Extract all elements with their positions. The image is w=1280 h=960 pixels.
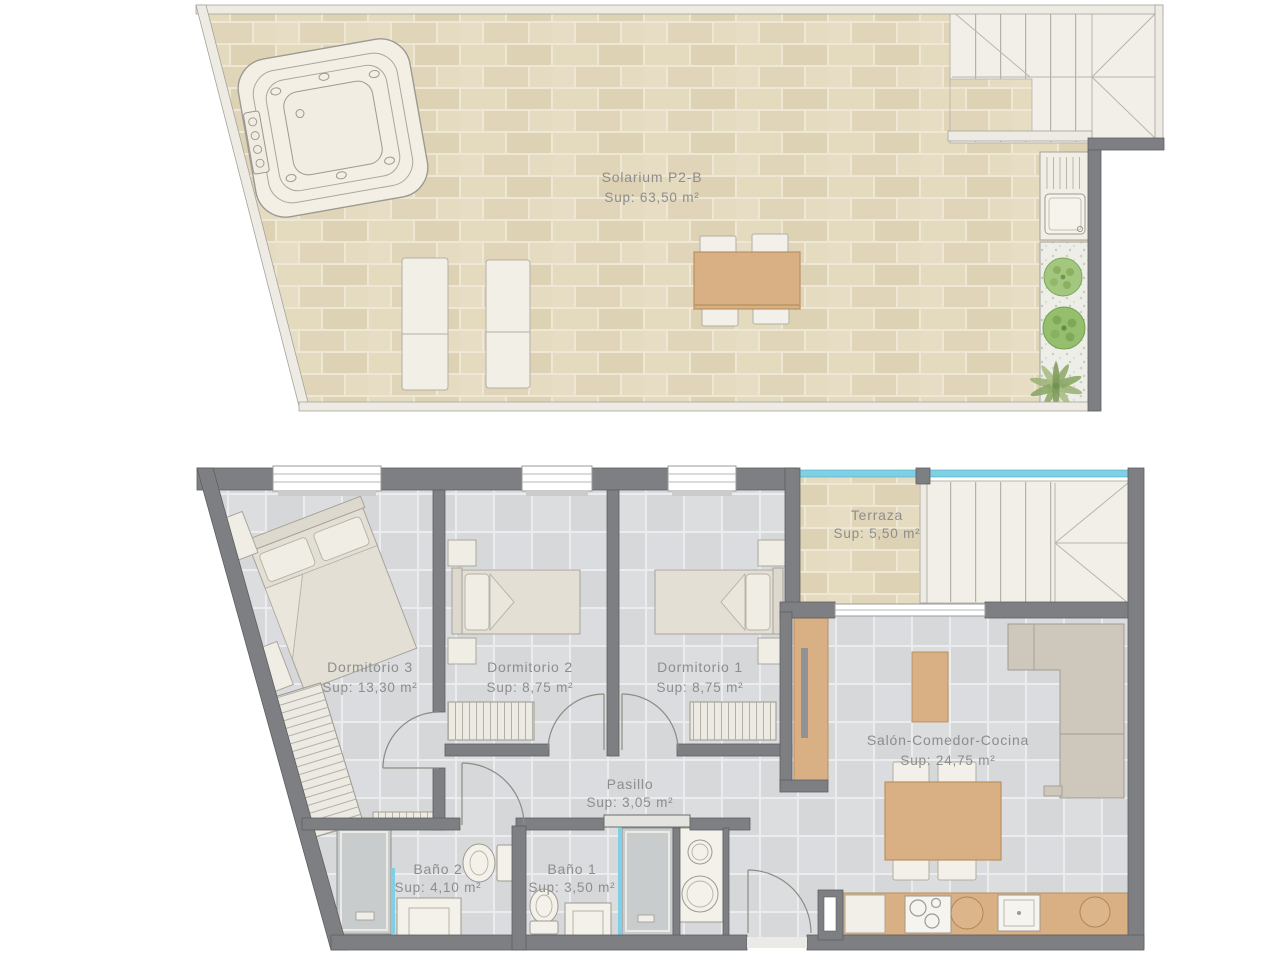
- terraza-area: Sup: 5,50 m²: [834, 526, 921, 541]
- dormitorio1-label: Dormitorio 1: [657, 659, 743, 675]
- coffee-table: [912, 652, 948, 722]
- glass-railing: [800, 470, 1128, 477]
- entrance-threshold: [747, 937, 807, 948]
- dormitorio2-label: Dormitorio 2: [487, 659, 573, 675]
- bano2-area: Sup: 4,10 m²: [395, 880, 482, 895]
- window: [273, 466, 381, 496]
- dormitorio1-area: Sup: 8,75 m²: [657, 680, 744, 695]
- pasillo-area: Sup: 3,05 m²: [587, 795, 674, 810]
- terraza-label: Terraza: [851, 507, 903, 523]
- kitchen-cabinet: [845, 895, 885, 933]
- salon-area: Sup: 24,75 m²: [900, 753, 995, 768]
- sliding-door-bano1: [604, 815, 690, 827]
- shower-glass: [618, 828, 622, 935]
- wardrobe: [690, 702, 776, 740]
- shower-glass: [391, 868, 395, 934]
- dormitorio3-area: Sup: 13,30 m²: [322, 680, 417, 695]
- shower: [337, 828, 395, 934]
- solarium-area: Sup: 63,50 m²: [604, 190, 699, 205]
- counter-basin: [1080, 897, 1110, 927]
- bush-plant: [1043, 307, 1085, 349]
- nightstand: [758, 540, 786, 566]
- single-bed: [655, 568, 783, 634]
- sun-lounger: [486, 260, 530, 388]
- wardrobe: [448, 702, 534, 740]
- window: [835, 604, 985, 616]
- solarium-plan: Solarium P2-B Sup: 63,50 m²: [196, 5, 1164, 411]
- floor-plans-page: Solarium P2-B Sup: 63,50 m²: [0, 0, 1280, 960]
- washer-column: [678, 828, 723, 922]
- nightstand: [448, 638, 476, 664]
- toilet: [463, 844, 513, 882]
- bano1-area: Sup: 3,50 m²: [529, 880, 616, 895]
- bano1-label: Baño 1: [547, 861, 596, 877]
- window: [668, 466, 736, 496]
- apartment-plan: Dormitorio 3 Sup: 13,30 m² Dormitorio 2 …: [197, 466, 1144, 950]
- salon-label: Salón-Comedor-Cocina: [867, 732, 1029, 748]
- single-bed: [452, 568, 580, 634]
- floor-plans: Solarium P2-B Sup: 63,50 m²: [0, 0, 1280, 960]
- nightstand: [448, 540, 476, 566]
- apartment-stairs: [920, 479, 1128, 603]
- bano2-label: Baño 2: [413, 861, 462, 877]
- counter-basin: [951, 897, 983, 929]
- tv-cabinet: [794, 618, 828, 782]
- toilet: [530, 889, 558, 934]
- sun-lounger: [402, 258, 448, 390]
- jacuzzi: [233, 34, 432, 222]
- solarium-label: Solarium P2-B: [602, 169, 703, 185]
- window: [522, 466, 592, 496]
- shower: [618, 828, 673, 935]
- bush-plant: [1044, 258, 1082, 296]
- pasillo-label: Pasillo: [607, 776, 654, 792]
- dormitorio3-label: Dormitorio 3: [327, 659, 413, 675]
- kitchen-sink: [998, 895, 1040, 931]
- solarium-sink-counter: [1040, 152, 1090, 240]
- dormitorio2-area: Sup: 8,75 m²: [487, 680, 574, 695]
- cooktop: [905, 896, 951, 933]
- solarium-stairs: [948, 10, 1160, 143]
- kitchen-counter: [843, 893, 1128, 935]
